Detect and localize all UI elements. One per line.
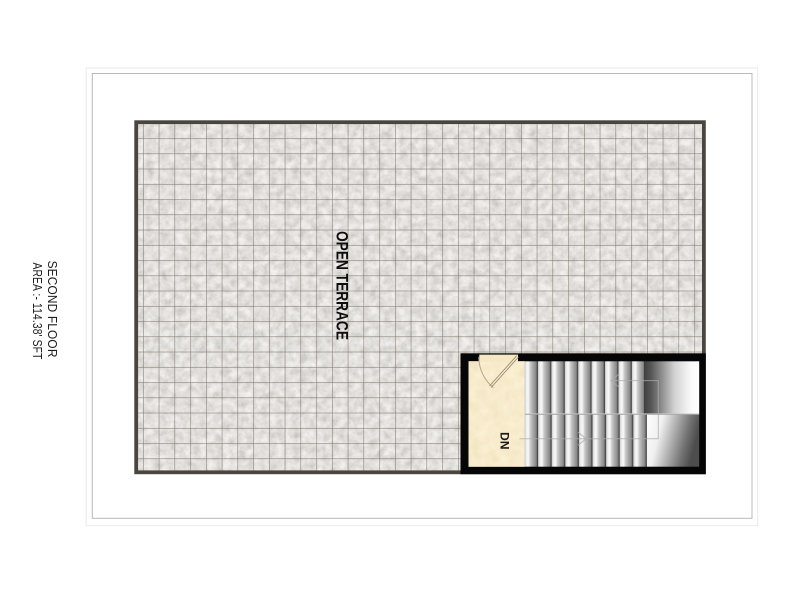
svg-text:DN: DN [498,432,512,450]
svg-text:SECOND FLOOR AREA :- 114.3: SECOND FLOOR AREA :- 114.38' SFT [30,261,60,362]
svg-text:OPEN TERRACE: OPEN TERRACE [332,231,350,340]
